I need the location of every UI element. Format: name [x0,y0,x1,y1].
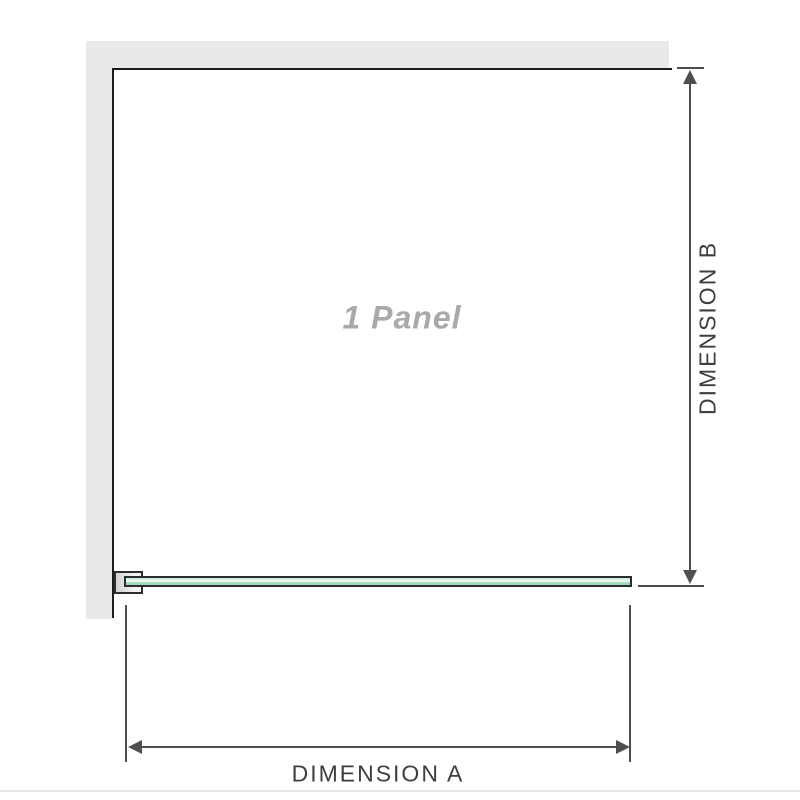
wall-inner-edge-vertical [112,68,114,618]
dimension-a-label: DIMENSION A [292,761,465,788]
arrow-up-icon [683,70,697,84]
product-diagram-canvas: 1 Panel DIMENSION B DIMENSION A [0,0,800,800]
dimension-a-extension-right [629,605,631,762]
bottom-divider [0,790,800,792]
glass-panel-plan-view [124,576,632,587]
wall-top [86,41,669,68]
wall-inner-edge-horizontal [112,68,672,70]
wall-left [86,41,113,619]
dimension-b-extension-bottom [638,585,704,587]
dimension-b-extension-top [677,67,704,69]
arrow-down-icon [683,570,697,584]
dimension-a-extension-left [125,605,127,762]
dimension-b-line [689,76,691,576]
dimension-a-line [134,746,622,748]
arrow-right-icon [616,740,630,754]
dimension-b-label: DIMENSION B [695,241,722,415]
arrow-left-icon [128,740,142,754]
panel-count-label: 1 Panel [342,300,461,337]
